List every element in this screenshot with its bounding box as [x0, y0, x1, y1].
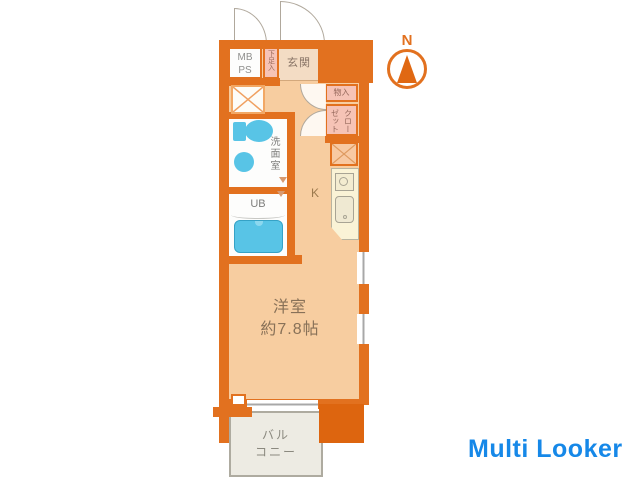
watermark: Multi Looker [468, 435, 623, 464]
window-balcony-door [247, 400, 318, 409]
mbps-label-line1: MB [230, 51, 260, 64]
kitchen-label: K [303, 186, 327, 200]
room-unit-bath: UB [229, 194, 287, 256]
entrance-label: 玄関 [279, 54, 319, 70]
room-mbps: MB PS [228, 47, 262, 79]
washbasin-icon [234, 152, 254, 172]
unit-bath-door-mark-icon [277, 191, 285, 197]
refrigerator-space [330, 142, 358, 166]
wall-cross-stub [213, 407, 252, 417]
window-right-upper [357, 252, 370, 284]
north-needle-icon [397, 55, 417, 83]
room-storage: 物入 [325, 84, 358, 102]
kitchen-counter [331, 168, 359, 240]
compass: N [384, 33, 430, 95]
main-room-size: 約7.8帖 [235, 319, 345, 341]
door-swing-arc-mbps [234, 8, 267, 44]
washroom-door-mark-icon [279, 177, 287, 183]
floor-plan: バル コニー MB PS 下足入 玄関 [0, 0, 640, 480]
wall-washroom-right [287, 112, 295, 263]
bathtub-icon [234, 220, 283, 253]
compass-label: N [384, 33, 430, 48]
stove-burner-icon [335, 173, 354, 191]
wall-left [219, 40, 229, 443]
stove-ring-icon [339, 177, 348, 186]
x-cross-icon [233, 87, 263, 112]
shoe-storage-label: 下足入 [266, 50, 277, 71]
wall-top-right-block [318, 45, 373, 83]
hatch-icon [332, 144, 356, 164]
wall-below-ub [219, 255, 302, 264]
balcony-label-line2: コニー [231, 444, 321, 461]
closet-label: クローゼット [329, 107, 355, 134]
wall-right [359, 83, 369, 405]
storage-label: 物入 [327, 86, 356, 99]
wall-corner-notch [231, 394, 246, 406]
kitchen-sink-icon [335, 196, 354, 223]
balcony-label-line1: バル [231, 427, 321, 444]
main-room-label: 洋室 約7.8帖 [235, 297, 345, 341]
sink-drain-icon [343, 215, 347, 219]
bathtub-drain-icon [255, 221, 263, 226]
room-closet: クローゼット [325, 104, 358, 136]
room-shoe-storage: 下足入 [263, 47, 279, 79]
door-swing-arc-entrance [280, 1, 325, 44]
washroom-label: 洗面室 [266, 136, 280, 186]
balcony-label: バル コニー [231, 427, 321, 461]
main-room-name: 洋室 [235, 297, 345, 319]
balcony: バル コニー [229, 411, 323, 477]
unit-bath-label: UB [229, 198, 287, 210]
mbps-label: MB PS [230, 51, 260, 77]
window-right-lower [357, 314, 370, 344]
mbps-label-line2: PS [230, 64, 260, 77]
washer-space [231, 85, 265, 114]
wall-bottom-right-block [319, 404, 364, 443]
bath-rail-line [231, 211, 285, 219]
compass-circle [387, 49, 427, 89]
